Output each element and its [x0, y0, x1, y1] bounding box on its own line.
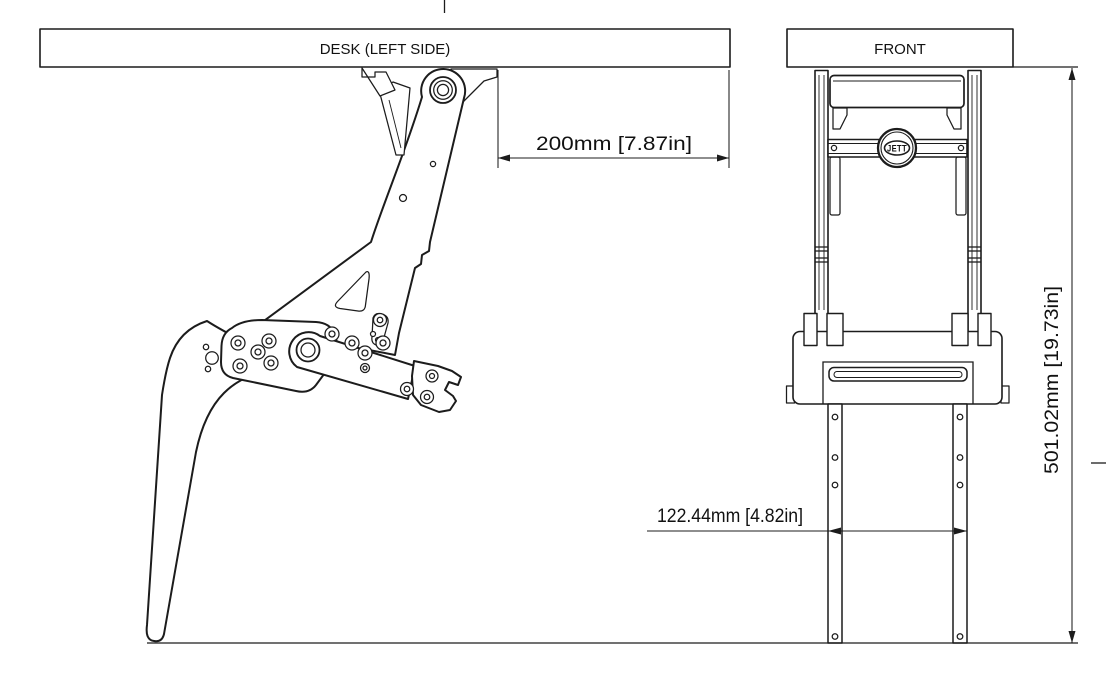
arrow-bottom	[1069, 631, 1076, 643]
front-corner-braces	[833, 108, 961, 129]
side-main-arm	[251, 69, 465, 355]
jett-logo-text: JETT	[887, 144, 907, 154]
dimension-height: 501.02mm [19.73in]	[1042, 68, 1076, 643]
dimension-122mm: 122.44mm [4.82in]	[647, 506, 967, 535]
front-base	[787, 332, 1010, 405]
leg-holes	[832, 414, 963, 639]
front-top-pad	[830, 76, 964, 108]
drawing-page: DESK (LEFT SIDE)	[0, 0, 1106, 676]
dim-height-text: 501.02mm [19.73in]	[1042, 286, 1063, 474]
arrow-top	[1069, 68, 1076, 80]
top-pivot	[430, 77, 456, 103]
arm-hole-upper	[430, 161, 435, 166]
desk-slab-front: FRONT	[787, 29, 1078, 67]
jett-logo-badge: JETT	[878, 129, 916, 167]
cad-drawing: DESK (LEFT SIDE)	[0, 0, 1106, 676]
link-pivot	[297, 339, 320, 362]
crossbar-screw-left	[831, 145, 836, 150]
arrow-left	[498, 155, 510, 162]
front-crossbar: JETT	[828, 129, 967, 167]
desk-slab-side: DESK (LEFT SIDE)	[40, 29, 730, 67]
side-clamp-hook	[362, 68, 395, 96]
arm-hole-lower	[400, 195, 407, 202]
side-view: DESK (LEFT SIDE)	[40, 29, 730, 641]
front-view-title: FRONT	[874, 41, 926, 58]
side-hook-end	[412, 361, 461, 412]
dimension-200mm: 200mm [7.87in]	[498, 70, 729, 168]
post-collars	[815, 247, 981, 262]
dim-200mm-text: 200mm [7.87in]	[536, 134, 692, 155]
front-view: JETT	[787, 29, 1079, 643]
small-link-bolt-inner	[377, 317, 383, 323]
dim-122mm-text: 122.44mm [4.82in]	[657, 506, 803, 527]
arrow-right	[717, 155, 729, 162]
front-legs	[828, 404, 967, 643]
side-view-title: DESK (LEFT SIDE)	[320, 41, 451, 58]
crossbar-screw-right	[958, 145, 963, 150]
